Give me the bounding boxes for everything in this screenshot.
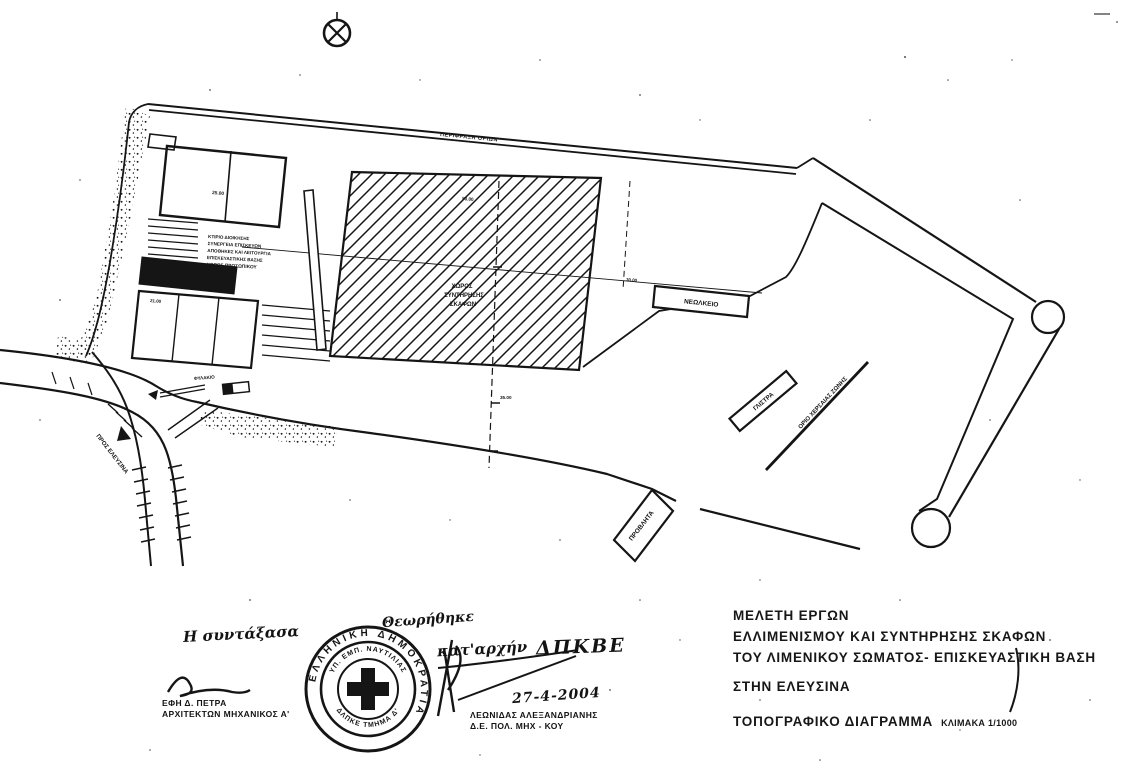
drawing-type-label: ΤΟΠΟΓΡΑΦΙΚΟ ΔΙΑΓΡΑΜΜΑ: [733, 714, 933, 729]
pier: ΠΡΟΒΛΗΤΑ: [614, 490, 673, 561]
dim-quay: 30.00: [626, 277, 638, 283]
slip-structure: ΓΛΙΣΤΡΑ: [730, 371, 797, 431]
dim-yard: 50.00: [462, 196, 474, 202]
stamp-cross-icon: [347, 668, 389, 710]
title-block: ΜΕΛΕΤΗ ΕΡΓΩΝ ΕΛΛΙΜΕΝΙΣΜΟΥ ΚΑΙ ΣΥΝΤΗΡΗΣΗΣ…: [733, 605, 1133, 734]
maintenance-area-line2: ΣΥΝΤΗΡΗΣΗΣ: [444, 293, 484, 299]
road-arrow-icon: [117, 426, 131, 441]
north-symbol-icon: [324, 12, 350, 46]
maintenance-area-line3: ΣΚΑΦΩΝ: [450, 302, 476, 308]
reviewer-title: Δ.Ε. ΠΟΛ. ΜΗΧ - ΚΟΥ: [470, 721, 598, 732]
zone-boundary-label: ΟΡΙΟ ΧΕΡΣΑΙΑΣ ΖΩΝΗΣ: [798, 376, 849, 431]
title-line-3: ΤΟΥ ΛΙΜΕΝΙΚΟΥ ΣΩΜΑΤΟΣ- ΕΠΙΣΚΕΥΑΣΤΙΚΗ ΒΑΣ…: [733, 647, 1133, 668]
scale-label: ΚΛΙΜΑΚΑ 1/1000: [941, 718, 1017, 728]
shoreline: [197, 402, 676, 501]
dim-building-a: 25.00: [212, 190, 225, 197]
reviewer-name: ΛΕΩΝΙΔΑΣ ΑΛΕΞΑΝΔΡΙΑΝΗΣ: [470, 710, 598, 721]
reviewer-handwritten-3: ΔΠΚΒΕ: [536, 634, 626, 659]
title-line-4: ΣΤΗΝ ΕΛΕΥΣΙΝΑ: [733, 676, 1133, 697]
official-stamp: ΕΛΛΗΝΙΚΗ ΔΗΜΟΚΡΑΤΙΑ ΥΠ. ΕΜΠ. ΝΑΥΤΙΛΙΑΣ Δ…: [306, 627, 430, 751]
reviewer-name-block: ΛΕΩΝΙΔΑΣ ΑΛΕΞΑΝΔΡΙΑΝΗΣ Δ.Ε. ΠΟΛ. ΜΗΧ - Κ…: [470, 710, 598, 732]
building-note-line: ΕΠΙΣΚΕΥΑΣΤΙΚΗΣ ΒΑΣΗΣ: [207, 255, 263, 263]
left-signature: [168, 678, 250, 696]
slip-label: ΓΛΙΣΤΡΑ: [752, 391, 776, 412]
building-note-block: ΚΤΙΡΙΟ ΔΙΟΙΚΗΣΗΣ ΣΥΝΕΡΓΕΙΑ ΕΠΙΣΚΕΥΩΝ ΑΠΟ…: [206, 234, 272, 271]
maintenance-yard: ΧΩΡΟΣ ΣΥΝΤΗΡΗΣΗΣ ΣΚΑΦΩΝ 50.00: [330, 172, 601, 370]
building-note-line: ΚΤΙΡΙΟ ΔΙΟΙΚΗΣΗΣ: [208, 234, 250, 241]
road: [0, 350, 218, 566]
title-line-2: ΕΛΛΙΜΕΝΙΣΜΟΥ ΚΑΙ ΣΥΝΤΗΡΗΣΗΣ ΣΚΑΦΩΝ: [733, 626, 1133, 647]
author-title: ΑΡΧΙΤΕΚΤΩΝ ΜΗΧΑΝΙΚΟΣ Α': [162, 709, 290, 720]
road-direction: ΠΡΟΣ ΕΛΕΥΣΙΝΑ: [94, 426, 131, 476]
gate-area: ΦΥΛΑΚΙΟ: [148, 375, 249, 400]
scanned-topographic-drawing: ΠΕΡΙΦΡΑΞΗ ΟΡΙΩΝ ΠΡΟΒΛΗΤΑ ΓΛΙΣΤΡΑ: [0, 0, 1140, 774]
author-name: ΕΦΗ Δ. ΠΕΤΡΑ: [162, 698, 290, 709]
land-zone-boundary: ΟΡΙΟ ΧΕΡΣΑΙΑΣ ΖΩΝΗΣ: [766, 362, 868, 470]
basin-quay-edge: [583, 203, 822, 367]
maintenance-area-line1: ΧΩΡΟΣ: [451, 284, 472, 290]
south-quay-line: [700, 509, 860, 549]
author-name-block: ΕΦΗ Δ. ΠΕΤΡΑ ΑΡΧΙΤΕΚΤΩΝ ΜΗΧΑΝΙΚΟΣ Α': [162, 698, 290, 720]
breakwater-mole: [813, 158, 1064, 547]
title-line-5: ΤΟΠΟΓΡΑΦΙΚΟ ΔΙΑΓΡΑΜΜΑΚΛΙΜΑΚΑ 1/1000: [733, 711, 1133, 734]
guardhouse-label: ΦΥΛΑΚΙΟ: [194, 375, 216, 381]
dim-building-b: 21.00: [150, 298, 162, 304]
dim-waterfront: 35.00: [500, 395, 512, 400]
title-line-1: ΜΕΛΕΤΗ ΕΡΓΩΝ: [733, 605, 1133, 626]
